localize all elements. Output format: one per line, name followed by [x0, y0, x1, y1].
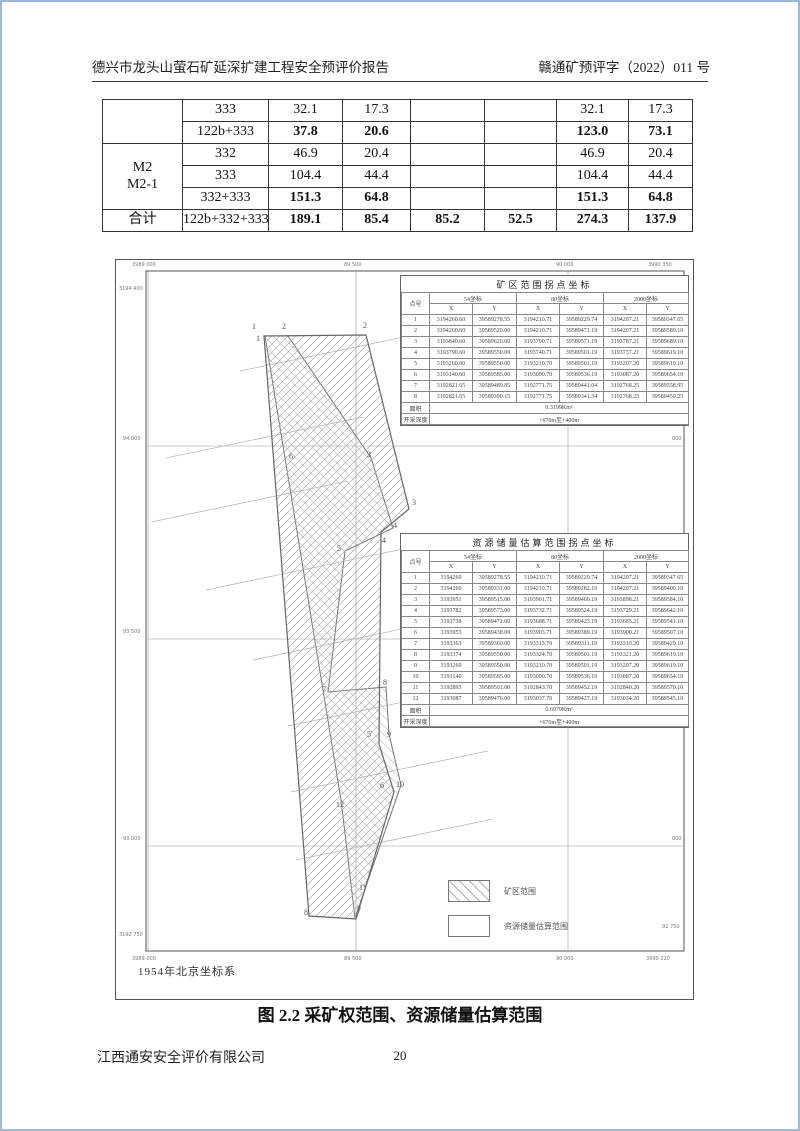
coord-cell: 7 [402, 381, 430, 392]
table-cell: 137.9 [629, 210, 693, 232]
coord-cell: 3193090.70 [517, 672, 560, 683]
coord-cell: 3193037.70 [517, 694, 560, 705]
coord-cell: 3193790.71 [517, 337, 560, 348]
table-cell: 332+333 [183, 188, 269, 210]
coord-cell: 3193729.21 [604, 606, 647, 617]
coord-data-row: 83192821.6539589390.153192771.7539589341… [402, 392, 689, 403]
coord-cell: 3 [402, 595, 430, 606]
coord-data-row: 8319337439589550.003193324.7039589501.19… [402, 650, 689, 661]
table-cell: 333 [183, 100, 269, 122]
coord-header-cell: Y [473, 562, 517, 573]
coord-header-cell: X [517, 304, 560, 315]
coord-cell: 3194207.21 [604, 584, 647, 595]
coord-cell: 39589389.19 [560, 628, 604, 639]
table-cell [485, 144, 557, 166]
coord-cell: 39589619.10 [647, 359, 689, 370]
coord-footer-value: 0.6979Km² [430, 705, 689, 716]
coord-cell: 39589278.55 [473, 315, 517, 326]
coord-cell: 39589619.10 [647, 650, 689, 661]
coord-cell: 39589501.19 [560, 348, 604, 359]
table-cell [485, 166, 557, 188]
coord-data-row: 33193840.6039589620.003193790.7139589571… [402, 337, 689, 348]
coord-header-cell: Y [647, 562, 689, 573]
coord-cell: 7 [402, 639, 430, 650]
table-cell: 189.1 [269, 210, 343, 232]
coord-cell: 39589229.74 [560, 573, 604, 584]
table-cell: 44.4 [629, 166, 693, 188]
table-cell [485, 188, 557, 210]
table-cell: 85.4 [343, 210, 411, 232]
coord-cell: 39589282.19 [560, 584, 604, 595]
coord-cell: 3192821.65 [430, 381, 473, 392]
table-cell: 37.8 [269, 122, 343, 144]
coord-cell: 6 [402, 370, 430, 381]
coord-cell: 3193087.20 [604, 672, 647, 683]
table-cell: M2M2-1 [103, 144, 183, 210]
coord-cell: 39589438.00 [473, 628, 517, 639]
coord-cell: 3194210.71 [517, 315, 560, 326]
coord-cell: 3193207.20 [604, 359, 647, 370]
legend-row-resource: 资源储量估算范围 [448, 915, 568, 937]
coord-header-cell: X [604, 562, 647, 573]
coord-cell: 39589278.55 [473, 573, 517, 584]
coord-cell: 3194260.60 [430, 315, 473, 326]
coord-cell: 39589507.10 [647, 628, 689, 639]
coord-cell: 3192893 [430, 683, 473, 694]
coord-data-row: 63193140.6039589585.003193090.7039589536… [402, 370, 689, 381]
coord-cell: 39589466.19 [560, 595, 604, 606]
coord-header-cell: 54坐标 [430, 551, 517, 562]
coord-table: 点号54坐标80坐标2000坐标XYXYXY1319426039589278.5… [401, 550, 689, 727]
plain-swatch-icon [448, 915, 490, 937]
header-document-number: 赣通矿预评字（2022）011 号 [538, 56, 710, 76]
coord-data-row: 7319336339589360.003193313.7039589311.19… [402, 639, 689, 650]
coord-data-row: 3319395139589515.003193901.7139589466.19… [402, 595, 689, 606]
coord-cell: 39589501.19 [560, 661, 604, 672]
coord-cell: 3193363 [430, 639, 473, 650]
coord-cell: 8 [402, 650, 430, 661]
coord-cell: 39589584.10 [647, 595, 689, 606]
coord-cell: 2 [402, 584, 430, 595]
coord-cell: 3193374 [430, 650, 473, 661]
coord-data-row: 6319395339589438.003193903.7139589389.19… [402, 628, 689, 639]
coord-cell: 3193732.71 [517, 606, 560, 617]
resource-corner-table: 资源储量估算范围拐点坐标点号54坐标80坐标2000坐标XYXYXY131942… [400, 533, 689, 728]
coord-cell: 3193840.60 [430, 337, 473, 348]
coord-cell: 3192843.70 [517, 683, 560, 694]
coord-cell: 39589571.19 [560, 337, 604, 348]
coord-cell: 3192840.20 [604, 683, 647, 694]
coord-header-cell: 80坐标 [517, 293, 604, 304]
coord-cell: 3 [402, 337, 430, 348]
coord-cell: 39589520.00 [473, 326, 517, 337]
coord-header-row: 点号54坐标80坐标2000坐标 [402, 551, 689, 562]
coord-cell: 39589501.00 [473, 683, 517, 694]
coord-cell: 39589472.00 [473, 617, 517, 628]
coord-cell: 39589619.10 [647, 348, 689, 359]
coord-cell: 3193953 [430, 628, 473, 639]
coord-cell: 3193140 [430, 672, 473, 683]
coord-cell: 4 [402, 606, 430, 617]
coord-cell: 39589229.74 [560, 315, 604, 326]
coord-cell: 5 [402, 359, 430, 370]
mining-boundary-polygon [264, 335, 409, 919]
coord-cell: 39589429.10 [647, 639, 689, 650]
table-row: 333104.444.4104.444.4 [103, 166, 693, 188]
table-cell [485, 122, 557, 144]
table-cell: 122b+333 [183, 122, 269, 144]
coord-data-row: 5319373839589472.003193688.7139589423.19… [402, 617, 689, 628]
coord-cell: 3193951 [430, 595, 473, 606]
figure-caption: 图 2.2 采矿权范围、资源储量估算范围 [2, 1001, 798, 1026]
table-cell: 104.4 [557, 166, 629, 188]
coord-cell: 3194260.60 [430, 326, 473, 337]
table-row: 合计122b+332+333189.185.485.252.5274.3137.… [103, 210, 693, 232]
coord-cell: 3193901.71 [517, 595, 560, 606]
coord-cell: 12 [402, 694, 430, 705]
coord-cell: 3193790.60 [430, 348, 473, 359]
coord-cell: 39589524.19 [560, 606, 604, 617]
table-cell: 104.4 [269, 166, 343, 188]
coord-cell: 1 [402, 315, 430, 326]
coord-footer-row: 开采深度+670m至+400m [402, 716, 689, 727]
coord-cell: 39589459.25 [647, 392, 689, 403]
coord-cell: 3193260.60 [430, 359, 473, 370]
coord-cell: 3193034.20 [604, 694, 647, 705]
coord-cell: 3193210.70 [517, 359, 560, 370]
coord-cell: 3193140.60 [430, 370, 473, 381]
table-cell: 151.3 [557, 188, 629, 210]
coord-cell: 3193740.71 [517, 348, 560, 359]
coord-data-row: 10319314039589585.003193090.7039589536.1… [402, 672, 689, 683]
coord-cell: 3194210.71 [517, 573, 560, 584]
coord-footer-label: 面积 [402, 705, 430, 716]
coord-cell: 39589619.10 [647, 661, 689, 672]
coord-cell: 3193087 [430, 694, 473, 705]
table-cell: 20.4 [629, 144, 693, 166]
coord-cell: 39589541.10 [647, 617, 689, 628]
coord-cell: 3193685.21 [604, 617, 647, 628]
coord-data-row: 11319289339589501.003192843.7039589452.1… [402, 683, 689, 694]
table-cell: 64.8 [629, 188, 693, 210]
table-cell: 合计 [103, 210, 183, 232]
coord-cell: 3194210.71 [517, 584, 560, 595]
map-legend: 矿区范围 资源储量估算范围 [448, 880, 568, 950]
coord-data-row: 1319426039589278.553194210.7139589229.74… [402, 573, 689, 584]
reserve-table: 33332.117.332.117.3122b+33337.820.6123.0… [102, 99, 693, 232]
coord-cell: 3193210.70 [517, 661, 560, 672]
table-cell: 122b+332+333 [183, 210, 269, 232]
coord-cell: 3193087.20 [604, 370, 647, 381]
coord-cell: 39589331.00 [473, 584, 517, 595]
coord-cell: 3194260 [430, 584, 473, 595]
table-row: 122b+33337.820.6123.073.1 [103, 122, 693, 144]
table-cell: 32.1 [557, 100, 629, 122]
coord-cell: 8 [402, 392, 430, 403]
coord-cell: 39589501.19 [560, 359, 604, 370]
hatched-swatch-icon [448, 880, 490, 902]
table-cell: 52.5 [485, 210, 557, 232]
coord-cell: 2 [402, 326, 430, 337]
coord-cell: 3192771.75 [517, 381, 560, 392]
coord-cell: 3193321.20 [604, 650, 647, 661]
coord-cell: 39589427.19 [560, 694, 604, 705]
coord-cell: 39589642.10 [647, 606, 689, 617]
coord-data-row: 53193260.6039589550.003193210.7039589501… [402, 359, 689, 370]
coord-footer-value: 0.3199Km² [430, 403, 689, 414]
coord-cell: 39589654.10 [647, 672, 689, 683]
coord-cell: 39589558.95 [647, 381, 689, 392]
legend-label-resource: 资源储量估算范围 [504, 921, 568, 932]
table-cell: 333 [183, 166, 269, 188]
coord-cell: 39589390.15 [473, 392, 517, 403]
coord-cell: 39589501.19 [560, 650, 604, 661]
table-row: 33332.117.332.117.3 [103, 100, 693, 122]
coord-cell: 39589585.00 [473, 370, 517, 381]
table-cell: 20.4 [343, 144, 411, 166]
coord-cell: 3192821.65 [430, 392, 473, 403]
coord-header-cell: Y [560, 304, 604, 315]
coord-cell: 39589452.19 [560, 683, 604, 694]
table-cell: 64.8 [343, 188, 411, 210]
coord-cell: 39589471.19 [560, 326, 604, 337]
coord-cell: 39589550.00 [473, 348, 517, 359]
coord-data-row: 4319378239589573.003193732.7139589524.19… [402, 606, 689, 617]
table-cell [103, 100, 183, 144]
coord-table-title: 矿区范围拐点坐标 [401, 276, 688, 292]
coord-header-cell: X [430, 562, 473, 573]
coord-cell: 39589550.00 [473, 661, 517, 672]
table-cell: 17.3 [343, 100, 411, 122]
table-cell: 332 [183, 144, 269, 166]
coordinate-system-note: 1954年北京坐标系 [138, 963, 236, 979]
coord-data-row: 12319308739589476.003193037.7039589427.1… [402, 694, 689, 705]
coord-header-row: XYXYXY [402, 304, 689, 315]
coord-cell: 3193207.20 [604, 661, 647, 672]
coord-cell: 39589347.65 [647, 573, 689, 584]
mining-corner-table: 矿区范围拐点坐标点号54坐标80坐标2000坐标XYXYXY13194260.6… [400, 275, 689, 426]
document-page: 德兴市龙头山萤石矿延深扩建工程安全预评价报告 赣通矿预评字（2022）011 号… [0, 0, 800, 1131]
coord-footer-label: 开采深度 [402, 414, 430, 425]
coord-cell: 3194207.21 [604, 573, 647, 584]
coord-cell: 3194207.21 [604, 315, 647, 326]
table-cell [411, 166, 485, 188]
coord-cell: 3193903.71 [517, 628, 560, 639]
coord-cell: 3194210.71 [517, 326, 560, 337]
coord-data-row: 73192821.6539589489.853192771.7539589441… [402, 381, 689, 392]
legend-label-mining: 矿区范围 [504, 886, 536, 897]
table-row: 332+333151.364.8151.364.8 [103, 188, 693, 210]
coord-footer-label: 开采深度 [402, 716, 430, 727]
coord-cell: 3193688.71 [517, 617, 560, 628]
coord-header-row: 点号54坐标80坐标2000坐标 [402, 293, 689, 304]
coord-cell: 39589589.10 [647, 326, 689, 337]
coord-cell: 4 [402, 348, 430, 359]
coord-header-cell: 点号 [402, 551, 430, 573]
coord-header-cell: X [430, 304, 473, 315]
coord-cell: 3193310.20 [604, 639, 647, 650]
coord-cell: 39589536.19 [560, 370, 604, 381]
coord-cell: 5 [402, 617, 430, 628]
table-cell [411, 100, 485, 122]
coord-header-cell: Y [647, 304, 689, 315]
coord-data-row: 43193790.6039589550.003193740.7139589501… [402, 348, 689, 359]
table-cell [411, 188, 485, 210]
coord-cell: 3193260 [430, 661, 473, 672]
coord-cell: 39589515.00 [473, 595, 517, 606]
coord-cell: 39589476.00 [473, 694, 517, 705]
table-cell: 151.3 [269, 188, 343, 210]
table-cell [411, 122, 485, 144]
coord-header-cell: 点号 [402, 293, 430, 315]
coord-cell: 39589550.00 [473, 650, 517, 661]
table-cell: 274.3 [557, 210, 629, 232]
coord-footer-row: 面积0.6979Km² [402, 705, 689, 716]
coord-cell: 3192771.75 [517, 392, 560, 403]
coord-cell: 3192768.25 [604, 381, 647, 392]
table-cell: 85.2 [411, 210, 485, 232]
coord-cell: 39589585.00 [473, 672, 517, 683]
legend-row-mining: 矿区范围 [448, 880, 568, 902]
coord-cell: 39589441.04 [560, 381, 604, 392]
coord-footer-value: +670m至+400m [430, 716, 689, 727]
coord-footer-row: 开采深度+670m至+400m [402, 414, 689, 425]
coord-header-cell: 2000坐标 [604, 551, 689, 562]
coord-data-row: 2319426039589331.003194210.7139589282.19… [402, 584, 689, 595]
coord-cell: 39589341.34 [560, 392, 604, 403]
coord-header-cell: X [604, 304, 647, 315]
coord-cell: 39589570.10 [647, 683, 689, 694]
table-cell [485, 100, 557, 122]
coord-cell: 3194260 [430, 573, 473, 584]
coord-cell: 39589654.10 [647, 370, 689, 381]
coord-cell: 39589400.10 [647, 584, 689, 595]
table-cell: 46.9 [269, 144, 343, 166]
coord-header-cell: 2000坐标 [604, 293, 689, 304]
coord-cell: 3193900.21 [604, 628, 647, 639]
table-cell: 32.1 [269, 100, 343, 122]
coord-header-cell: Y [560, 562, 604, 573]
coord-cell: 3193090.70 [517, 370, 560, 381]
coord-footer-value: +670m至+400m [430, 414, 689, 425]
table-cell: 123.0 [557, 122, 629, 144]
coord-cell: 3192768.25 [604, 392, 647, 403]
coord-cell: 9 [402, 661, 430, 672]
page-header: 德兴市龙头山萤石矿延深扩建工程安全预评价报告 赣通矿预评字（2022）011 号 [92, 56, 710, 76]
table-cell [411, 144, 485, 166]
coord-cell: 39589423.19 [560, 617, 604, 628]
coord-table-title: 资源储量估算范围拐点坐标 [401, 534, 688, 550]
footer-page-number: 20 [2, 1048, 798, 1064]
coord-cell: 39589550.00 [473, 359, 517, 370]
coord-cell: 11 [402, 683, 430, 694]
coord-cell: 6 [402, 628, 430, 639]
table-cell: 46.9 [557, 144, 629, 166]
coord-cell: 10 [402, 672, 430, 683]
figure-map: 3989 00089 50090 0003990 3503194 40094 0… [115, 259, 694, 1000]
coord-cell: 39589620.00 [473, 337, 517, 348]
coord-cell: 3193738 [430, 617, 473, 628]
coord-cell: 39589347.65 [647, 315, 689, 326]
coord-data-row: 23194260.6039589520.003194210.7139589471… [402, 326, 689, 337]
coord-header-cell: 80坐标 [517, 551, 604, 562]
table-row: M2M2-133246.920.446.920.4 [103, 144, 693, 166]
coord-header-row: XYXYXY [402, 562, 689, 573]
coord-data-row: 9319326039589550.003193210.7039589501.19… [402, 661, 689, 672]
coord-cell: 3194207.21 [604, 326, 647, 337]
coord-cell: 39589360.00 [473, 639, 517, 650]
coord-cell: 3193324.70 [517, 650, 560, 661]
coord-cell: 3193737.21 [604, 348, 647, 359]
coord-footer-row: 面积0.3199Km² [402, 403, 689, 414]
coord-cell: 39589573.00 [473, 606, 517, 617]
coord-cell: 3193313.70 [517, 639, 560, 650]
coord-header-cell: Y [473, 304, 517, 315]
coord-cell: 3193787.21 [604, 337, 647, 348]
table-cell: 73.1 [629, 122, 693, 144]
coord-cell: 39589545.10 [647, 694, 689, 705]
coord-cell: 39589536.19 [560, 672, 604, 683]
coord-cell: 3193898.21 [604, 595, 647, 606]
table-cell: 20.6 [343, 122, 411, 144]
header-rule [92, 81, 708, 82]
coord-table: 点号54坐标80坐标2000坐标XYXYXY13194260.603958927… [401, 292, 689, 425]
table-cell: 17.3 [629, 100, 693, 122]
table-cell: 44.4 [343, 166, 411, 188]
coord-header-cell: X [517, 562, 560, 573]
coord-cell: 39589311.19 [560, 639, 604, 650]
coord-cell: 39589489.85 [473, 381, 517, 392]
coord-cell: 39589689.10 [647, 337, 689, 348]
coord-footer-label: 面积 [402, 403, 430, 414]
coord-header-cell: 54坐标 [430, 293, 517, 304]
coord-data-row: 13194260.6039589278.553194210.7139589229… [402, 315, 689, 326]
coord-cell: 3193782 [430, 606, 473, 617]
header-report-title: 德兴市龙头山萤石矿延深扩建工程安全预评价报告 [92, 56, 389, 76]
coord-cell: 1 [402, 573, 430, 584]
